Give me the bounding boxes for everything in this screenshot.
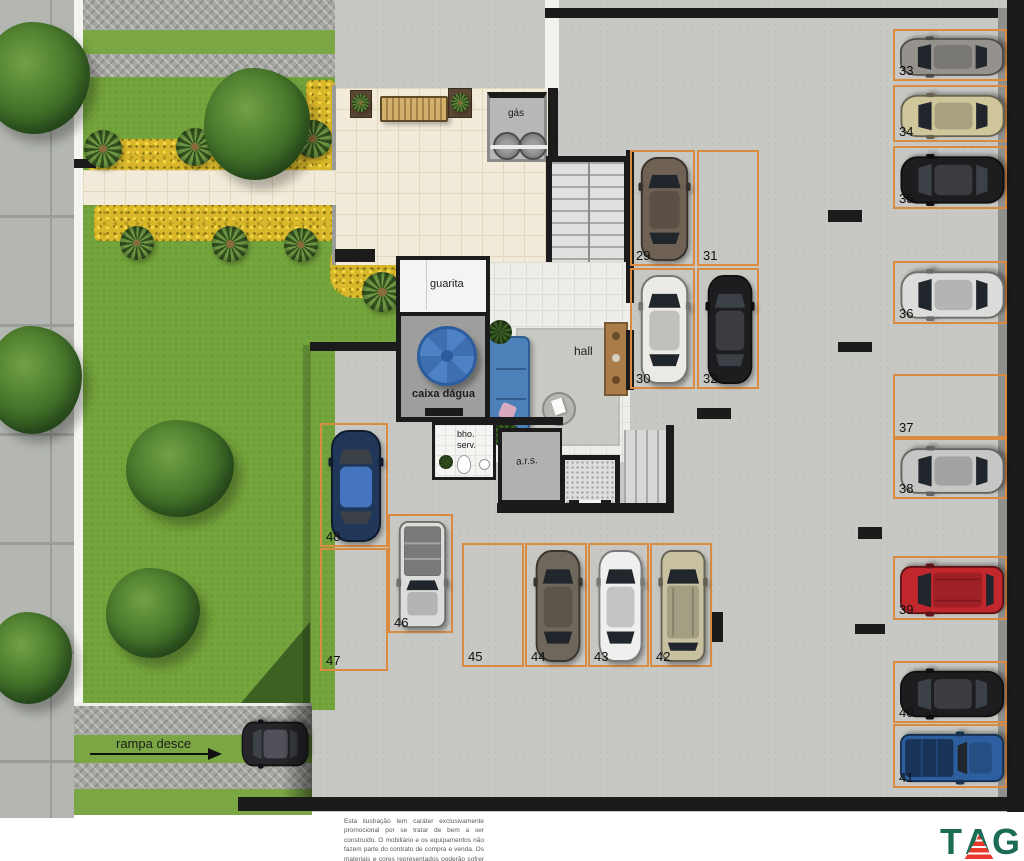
floor-plan: rampa desce gás hall guarita (0, 0, 1024, 861)
car-41 (899, 731, 1005, 785)
parking-stalls: 29 30 3132 33 34 35 (0, 0, 1024, 861)
parking-stall-48: 48 (320, 423, 388, 547)
parking-stall-30: 30 (630, 268, 695, 389)
car-42 (658, 549, 708, 663)
parking-stall-38: 38 (893, 438, 1007, 499)
car-39 (899, 563, 1005, 617)
car-29 (638, 156, 691, 262)
stall-number: 40 (899, 705, 913, 720)
stall-number: 42 (656, 649, 670, 664)
car-38 (899, 445, 1005, 496)
stall-number: 34 (899, 124, 913, 139)
car-46 (396, 520, 449, 629)
car-33 (899, 36, 1005, 78)
stall-number: 44 (531, 649, 545, 664)
car-48 (328, 429, 384, 543)
stall-number: 47 (326, 653, 340, 668)
logo-letter-t: T (938, 824, 965, 860)
parking-stall-40: 40 (893, 661, 1007, 723)
parking-stall-44: 44 (525, 543, 587, 667)
parking-stall-42: 42 (650, 543, 712, 667)
parking-stall-29: 29 (630, 150, 695, 266)
stall-number: 37 (899, 420, 913, 435)
stall-number: 36 (899, 306, 913, 321)
stall-number: 35 (899, 191, 913, 206)
car-40 (899, 668, 1005, 720)
car-32 (705, 274, 755, 385)
parking-stall-43: 43 (588, 543, 649, 667)
stall-number: 48 (326, 529, 340, 544)
car-43 (596, 549, 645, 663)
stall-number: 39 (899, 602, 913, 617)
parking-stall-41: 41 (893, 724, 1007, 788)
car-35 (899, 153, 1005, 206)
stall-number: 29 (636, 248, 650, 263)
parking-stall-45: 45 (462, 543, 524, 667)
parking-stall-31: 31 (697, 150, 759, 266)
parking-stall-46: 46 (388, 514, 453, 633)
parking-stall-37: 37 (893, 374, 1007, 438)
parking-stall-33: 33 (893, 29, 1007, 81)
stall-number: 31 (703, 248, 717, 263)
parking-stall-32: 32 (697, 268, 759, 389)
car-44 (533, 549, 583, 663)
car-30 (638, 274, 691, 385)
stall-number: 43 (594, 649, 608, 664)
parking-stall-35: 35 (893, 146, 1007, 209)
stall-number: 33 (899, 63, 913, 78)
parking-stall-47: 47 (320, 548, 388, 671)
tag-logo: T A G (938, 820, 1020, 860)
parking-stall-39: 39 (893, 556, 1007, 620)
stall-number: 32 (703, 371, 717, 386)
stall-number: 45 (468, 649, 482, 664)
disclaimer-text: Esta ilustração tem caráter exclusivamen… (344, 817, 484, 861)
logo-letter-g: G (992, 824, 1019, 860)
parking-stall-36: 36 (893, 261, 1007, 324)
stall-number: 41 (899, 770, 913, 785)
stall-number: 30 (636, 371, 650, 386)
car-34 (899, 92, 1005, 139)
entrance-shadow (282, 703, 312, 797)
stall-number: 46 (394, 615, 408, 630)
car-36 (899, 268, 1005, 321)
stall-number: 38 (899, 481, 913, 496)
parking-stall-34: 34 (893, 85, 1007, 142)
